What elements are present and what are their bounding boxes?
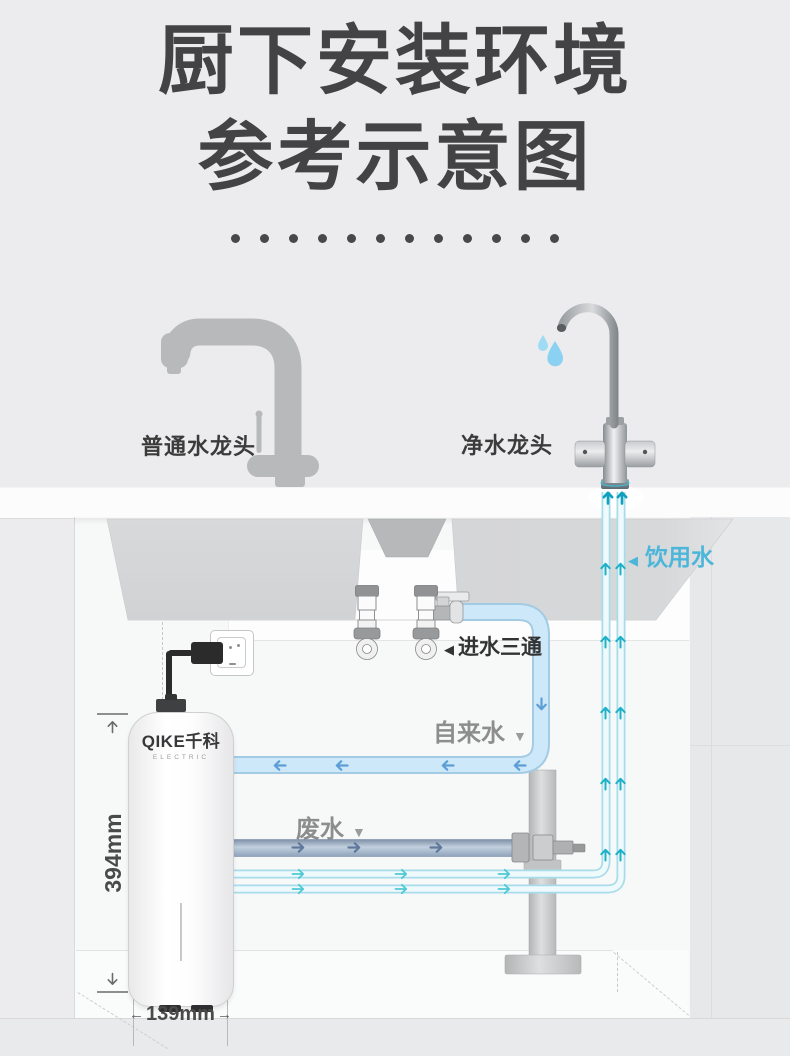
separator-dot xyxy=(260,234,269,243)
connector-nub xyxy=(165,694,177,700)
separator-dot xyxy=(289,234,298,243)
separator-dot xyxy=(231,234,240,243)
power-cable xyxy=(168,650,193,656)
separator-dot xyxy=(492,234,501,243)
water-drop-icon xyxy=(538,335,563,366)
left-pointer-icon: ◀ xyxy=(444,642,454,657)
label-inlet-tee: ◀进水三通 xyxy=(444,631,542,661)
separator-dot xyxy=(318,234,327,243)
faucet-spout-tip xyxy=(557,324,566,332)
down-pointer-icon: ▼ xyxy=(352,824,366,840)
down-pointer-icon: ▼ xyxy=(513,728,527,744)
power-plug xyxy=(191,642,223,664)
separator-dot xyxy=(550,234,559,243)
purifier-seam xyxy=(180,903,182,961)
outlet-pin-icon xyxy=(229,646,232,649)
separator-dot xyxy=(376,234,385,243)
title-line-1: 厨下安装环境 xyxy=(0,14,790,110)
outlet-pin-icon xyxy=(237,644,240,647)
countertop xyxy=(0,487,790,519)
faucet-handle xyxy=(575,441,605,467)
separator-dot xyxy=(463,234,472,243)
back-wall-niche xyxy=(228,550,689,641)
installation-diagram: QIKE千科 ELECTRIC 厨下安装环境 参考示意图 普通水龙头 净水龙头 … xyxy=(0,0,790,1056)
floor-corner-dash-vertical xyxy=(617,952,618,992)
wall-seam-vertical xyxy=(711,517,712,1018)
normal-faucet-illustration xyxy=(161,332,319,487)
label-drinking-water: ◀饮用水 xyxy=(628,538,714,572)
faucet-handle xyxy=(625,441,655,467)
wall-seam-horizontal xyxy=(690,745,790,746)
separator-dot xyxy=(434,234,443,243)
title-line-2: 参考示意图 xyxy=(0,110,790,206)
label-purified-faucet: 净水龙头 xyxy=(461,428,553,460)
water-purifier: QIKE千科 ELECTRIC xyxy=(128,712,234,1007)
label-tap-water: 自来水▼ xyxy=(433,713,527,748)
purified-faucet-illustration xyxy=(538,308,655,504)
page-title: 厨下安装环境 参考示意图 xyxy=(0,14,790,206)
under-counter-shadow xyxy=(74,518,690,525)
height-dimension-label: 394mm xyxy=(100,793,126,913)
label-normal-faucet: 普通水龙头 xyxy=(141,429,256,461)
label-waste-water: 废水▼ xyxy=(296,809,366,844)
outlet-slot-icon xyxy=(229,663,236,666)
right-arrow-icon: → xyxy=(217,1006,232,1023)
purifier-brand: QIKE千科 xyxy=(129,727,233,752)
separator-dot xyxy=(405,234,414,243)
cable-guide-dash xyxy=(162,612,163,700)
purifier-power-connector xyxy=(156,699,186,712)
purifier-subbrand: ELECTRIC xyxy=(129,754,233,761)
separator-dot xyxy=(347,234,356,243)
width-dimension-label: ← 139mm → xyxy=(129,1003,232,1026)
right-wall xyxy=(690,517,790,1018)
left-pointer-icon: ◀ xyxy=(628,553,638,568)
outer-floor xyxy=(0,1018,790,1056)
faucet-gooseneck xyxy=(562,308,614,424)
faucet-handle xyxy=(257,413,262,453)
dots-separator xyxy=(0,234,790,243)
separator-dot xyxy=(521,234,530,243)
left-arrow-icon: ← xyxy=(129,1006,144,1023)
